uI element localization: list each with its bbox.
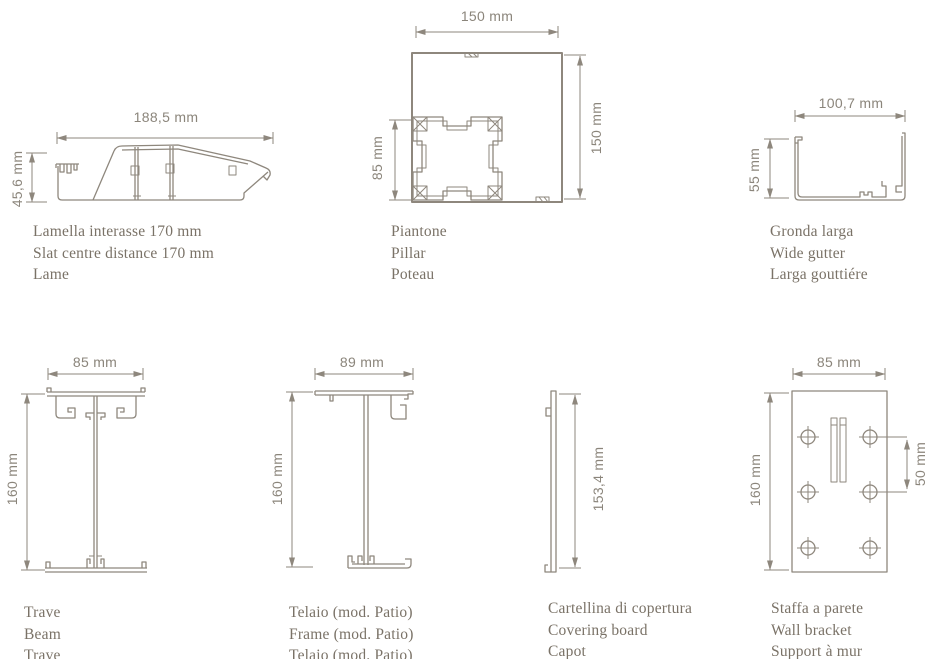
gutter-width-dimension: 100,7 mm <box>819 95 884 111</box>
wall-bracket-caption-en: Wall bracket <box>771 620 863 642</box>
frame-captions: Telaio (mod. Patio) Frame (mod. Patio) T… <box>289 602 414 659</box>
covering-board-captions: Cartellina di copertura Covering board C… <box>548 598 692 659</box>
frame-caption-fr: Telaio (mod. Patio) <box>289 645 414 659</box>
pillar-caption-it: Piantone <box>391 221 447 243</box>
screw-holes <box>797 426 881 559</box>
pillar-height-dimension: 150 mm <box>588 102 604 154</box>
slat-height-dimension: 45,6 mm <box>9 151 25 208</box>
slat-captions: Lamella interasse 170 mm Slat centre dis… <box>33 221 214 286</box>
frame-caption-it: Telaio (mod. Patio) <box>289 602 414 624</box>
covering-board-caption-it: Cartellina di copertura <box>548 598 692 620</box>
slat-profile-drawing <box>26 132 273 202</box>
slat-caption-en: Slat centre distance 170 mm <box>33 243 214 265</box>
slat-width-dimension: 188,5 mm <box>134 109 199 125</box>
beam-captions: Trave Beam Trave <box>24 602 61 659</box>
wall-bracket-captions: Staffa a parete Wall bracket Support à m… <box>771 598 863 659</box>
frame-caption-en: Frame (mod. Patio) <box>289 624 414 646</box>
wall-bracket-caption-fr: Support à mur <box>771 641 863 659</box>
gutter-captions: Gronda larga Wide gutter Larga gouttiére <box>770 221 868 286</box>
slat-caption-it: Lamella interasse 170 mm <box>33 221 214 243</box>
gutter-caption-en: Wide gutter <box>770 243 868 265</box>
pillar-inner-dimension: 85 mm <box>369 136 385 180</box>
frame-profile-drawing <box>286 368 413 568</box>
wall-bracket-hole-spacing-dimension: 50 mm <box>912 442 928 486</box>
pillar-caption-fr: Poteau <box>391 264 447 286</box>
beam-caption-it: Trave <box>24 602 61 624</box>
profiles-linework <box>0 0 930 659</box>
beam-width-dimension: 85 mm <box>73 354 117 370</box>
frame-width-dimension: 89 mm <box>340 354 384 370</box>
beam-height-dimension: 160 mm <box>4 453 20 505</box>
wall-bracket-height-dimension: 160 mm <box>747 454 763 506</box>
gutter-caption-it: Gronda larga <box>770 221 868 243</box>
covering-board-height-dimension: 153,4 mm <box>590 447 606 512</box>
pillar-caption-en: Pillar <box>391 243 447 265</box>
wall-bracket-profile-drawing <box>764 368 907 572</box>
pillar-width-dimension: 150 mm <box>461 8 513 24</box>
pillar-captions: Piantone Pillar Poteau <box>391 221 447 286</box>
slat-caption-fr: Lame <box>33 264 214 286</box>
profile-catalog-page: 188,5 mm 45,6 mm 150 mm 85 mm 150 mm 100… <box>0 0 930 659</box>
gutter-caption-fr: Larga gouttiére <box>770 264 868 286</box>
beam-profile-drawing <box>21 368 147 572</box>
gutter-height-dimension: 55 mm <box>746 148 762 192</box>
beam-caption-en: Beam <box>24 624 61 646</box>
gutter-profile-drawing <box>764 110 905 200</box>
wall-bracket-caption-it: Staffa a parete <box>771 598 863 620</box>
wall-bracket-width-dimension: 85 mm <box>817 354 861 370</box>
pillar-profile-drawing <box>389 26 586 202</box>
frame-height-dimension: 160 mm <box>269 453 285 505</box>
beam-caption-fr: Trave <box>24 645 61 659</box>
covering-board-caption-fr: Capot <box>548 641 692 659</box>
covering-board-caption-en: Covering board <box>548 620 692 642</box>
covering-board-profile-drawing <box>545 391 581 572</box>
